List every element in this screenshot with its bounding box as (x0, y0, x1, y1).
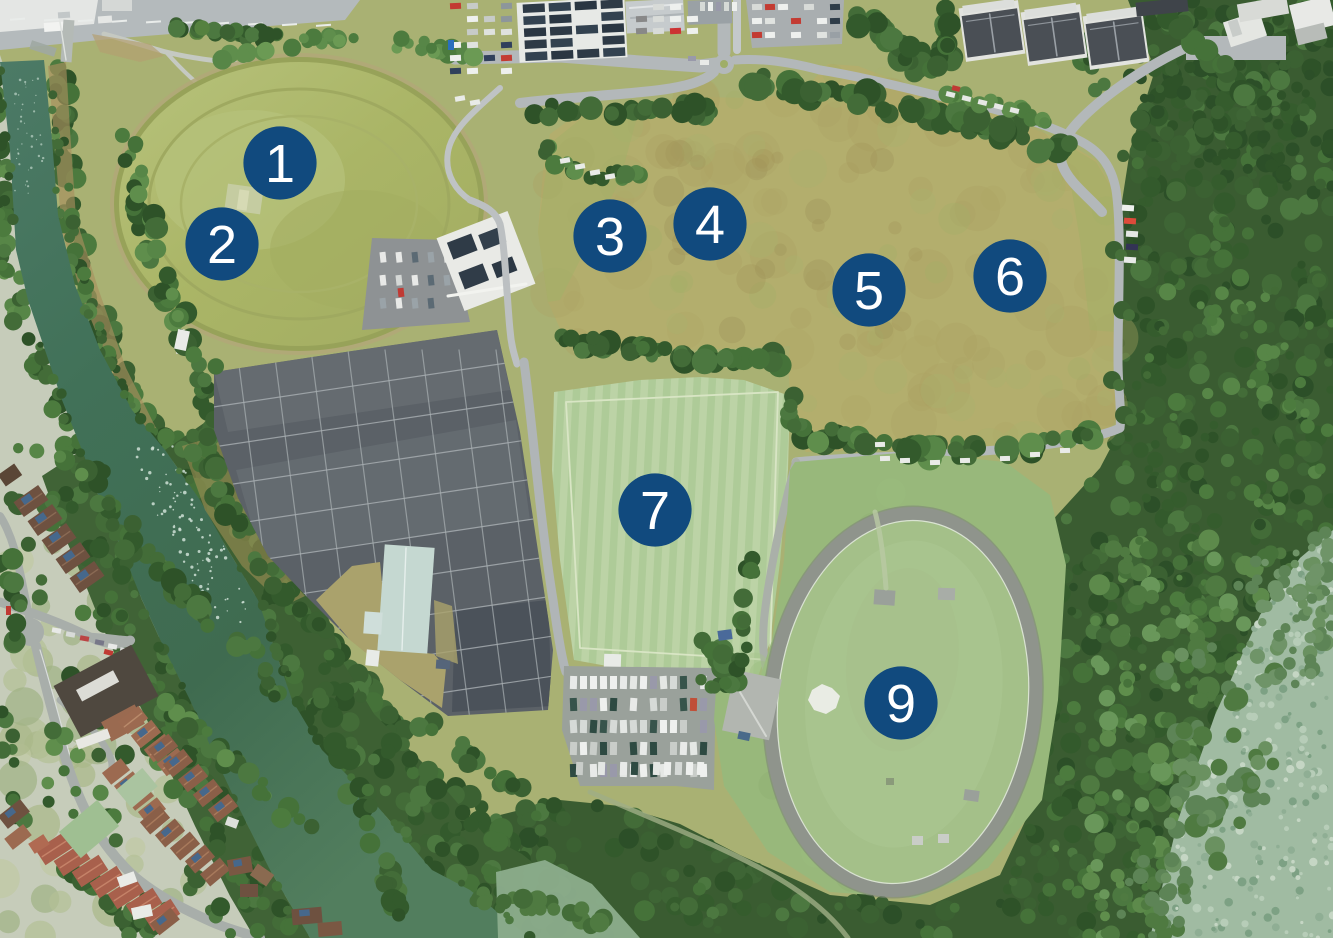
svg-text:2: 2 (207, 215, 237, 275)
svg-text:9: 9 (886, 674, 916, 734)
svg-text:7: 7 (640, 481, 670, 541)
svg-text:6: 6 (995, 247, 1025, 307)
svg-text:4: 4 (695, 195, 725, 255)
svg-text:3: 3 (595, 207, 625, 267)
svg-text:1: 1 (265, 134, 295, 194)
svg-text:5: 5 (854, 261, 884, 321)
